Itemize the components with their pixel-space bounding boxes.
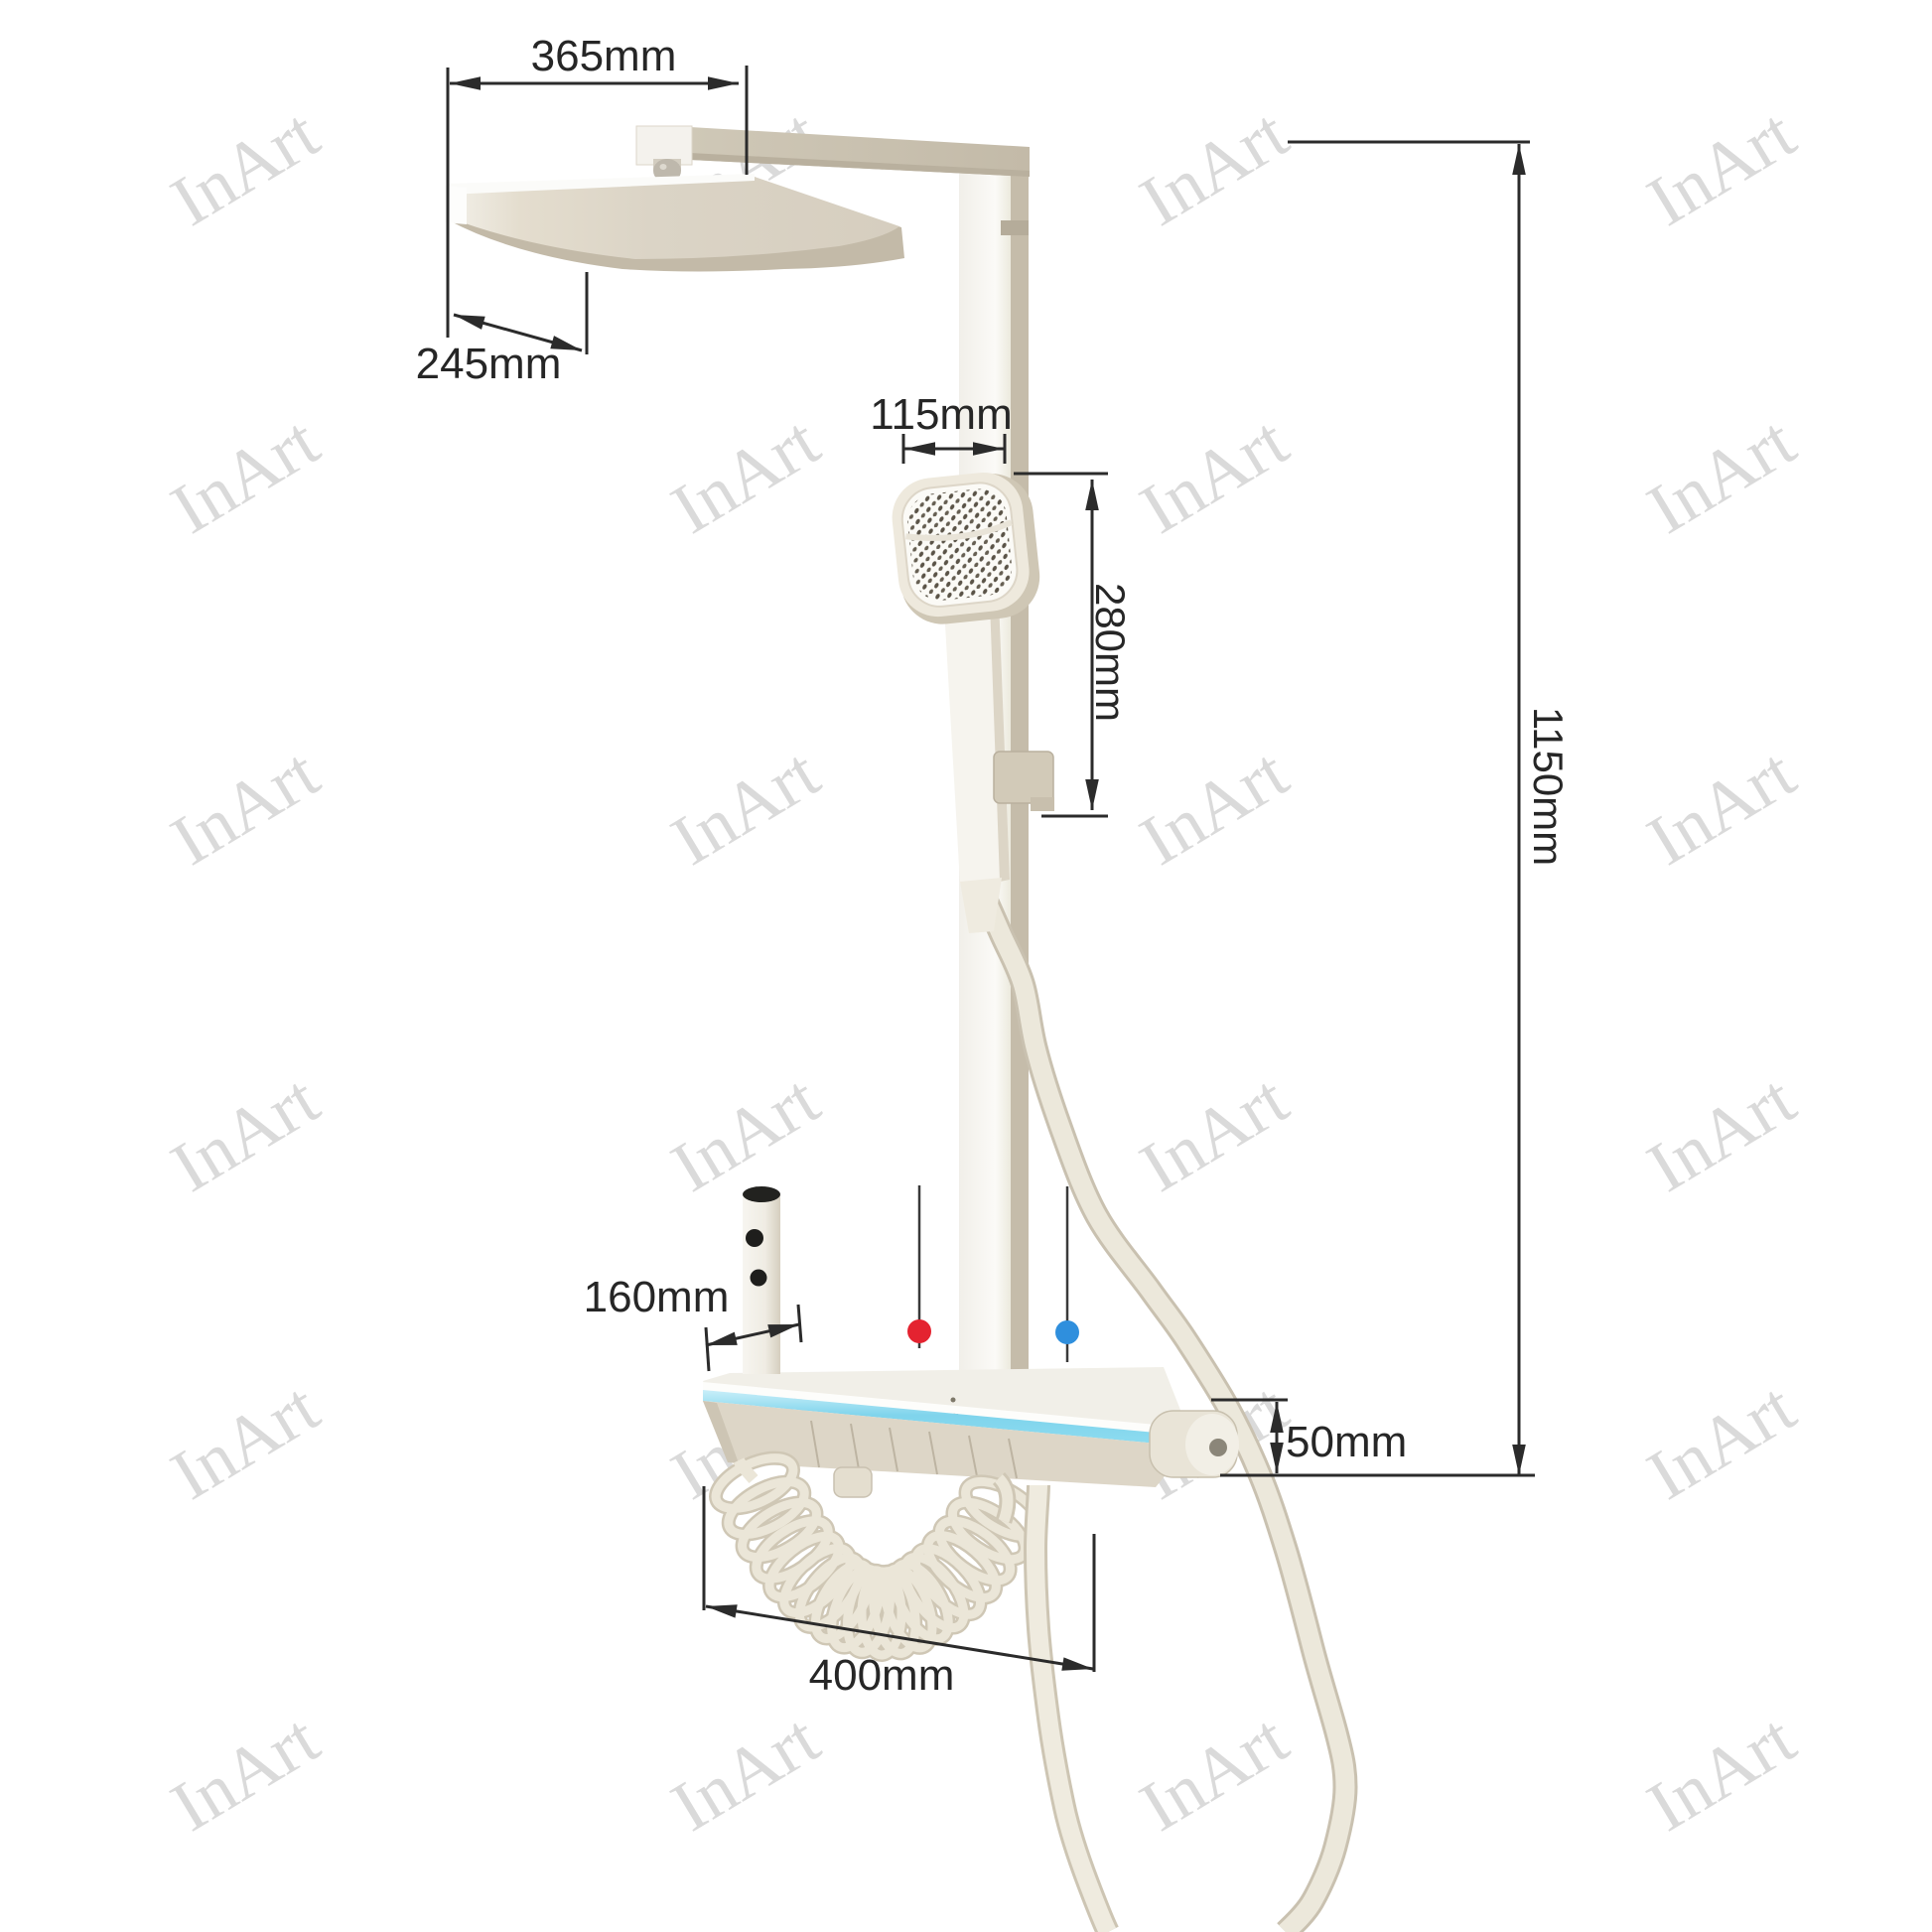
svg-text:400mm: 400mm [809, 1651, 955, 1700]
svg-text:245mm: 245mm [416, 340, 562, 388]
svg-text:280mm: 280mm [1087, 583, 1134, 722]
svg-text:365mm: 365mm [531, 32, 677, 80]
svg-text:1150mm: 1150mm [1525, 707, 1572, 866]
svg-text:160mm: 160mm [584, 1273, 730, 1321]
svg-text:50mm: 50mm [1286, 1418, 1407, 1466]
svg-text:115mm: 115mm [870, 390, 1012, 439]
